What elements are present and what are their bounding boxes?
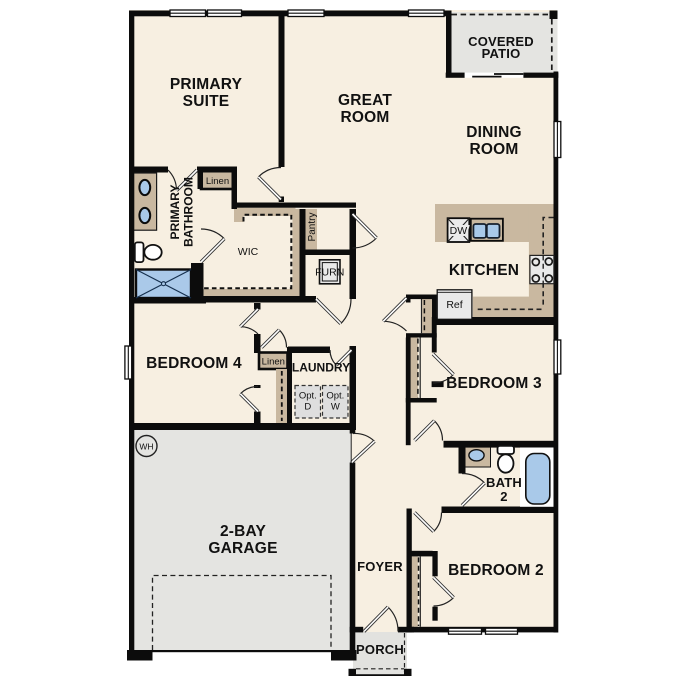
svg-text:FOYER: FOYER <box>357 559 403 574</box>
svg-text:Linen: Linen <box>206 176 229 187</box>
svg-text:BEDROOM 3: BEDROOM 3 <box>446 375 542 392</box>
svg-text:PORCH: PORCH <box>356 642 404 657</box>
svg-text:GARAGE: GARAGE <box>208 540 277 557</box>
svg-text:LAUNDRY: LAUNDRY <box>292 361 350 375</box>
svg-text:PRIMARY: PRIMARY <box>168 185 182 240</box>
svg-text:Opt.: Opt. <box>299 391 317 402</box>
svg-text:SUITE: SUITE <box>183 93 230 110</box>
svg-text:FURN: FURN <box>315 267 344 279</box>
svg-text:Ref: Ref <box>446 299 462 311</box>
svg-text:BATH: BATH <box>486 475 522 490</box>
svg-text:BEDROOM 4: BEDROOM 4 <box>146 355 242 372</box>
svg-text:ROOM: ROOM <box>469 141 518 158</box>
svg-text:DINING: DINING <box>466 124 521 141</box>
svg-text:Pantry: Pantry <box>307 213 318 242</box>
svg-text:W: W <box>331 402 340 413</box>
svg-text:Linen: Linen <box>262 357 285 368</box>
svg-text:WH: WH <box>139 442 153 452</box>
svg-text:WIC: WIC <box>238 246 259 258</box>
svg-text:DW: DW <box>450 225 468 237</box>
svg-text:PRIMARY: PRIMARY <box>170 76 243 93</box>
svg-text:ROOM: ROOM <box>340 109 389 126</box>
svg-text:Opt.: Opt. <box>326 391 344 402</box>
svg-text:2: 2 <box>500 489 507 504</box>
svg-text:BEDROOM 2: BEDROOM 2 <box>448 562 544 579</box>
svg-text:PATIO: PATIO <box>482 46 521 61</box>
svg-text:BATHROOM: BATHROOM <box>181 177 195 247</box>
svg-text:2-BAY: 2-BAY <box>220 523 267 540</box>
svg-text:GREAT: GREAT <box>338 92 392 109</box>
svg-text:D: D <box>304 402 311 413</box>
svg-text:KITCHEN: KITCHEN <box>449 262 519 279</box>
